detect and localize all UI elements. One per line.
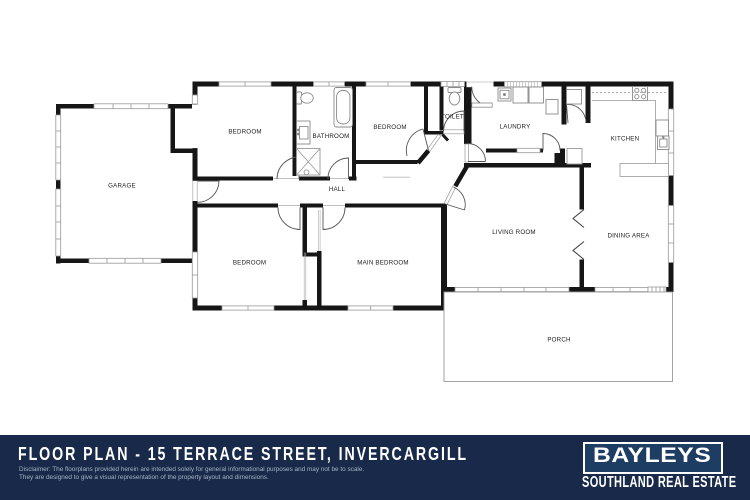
- svg-text:KITCHEN: KITCHEN: [611, 135, 640, 142]
- svg-text:TOILET: TOILET: [441, 114, 464, 121]
- svg-text:GARAGE: GARAGE: [108, 182, 136, 189]
- svg-text:BEDROOM: BEDROOM: [233, 260, 266, 267]
- svg-text:BEDROOM: BEDROOM: [373, 124, 406, 131]
- svg-text:MAIN BEDROOM: MAIN BEDROOM: [357, 260, 409, 267]
- svg-text:HALL: HALL: [329, 186, 346, 193]
- svg-text:LIVING ROOM: LIVING ROOM: [492, 229, 535, 236]
- svg-text:BATHROOM: BATHROOM: [313, 133, 350, 140]
- svg-text:LAUNDRY: LAUNDRY: [500, 123, 531, 130]
- svg-text:BEDROOM: BEDROOM: [228, 128, 261, 135]
- svg-text:PORCH: PORCH: [547, 336, 570, 343]
- svg-text:DINING AREA: DINING AREA: [607, 232, 650, 239]
